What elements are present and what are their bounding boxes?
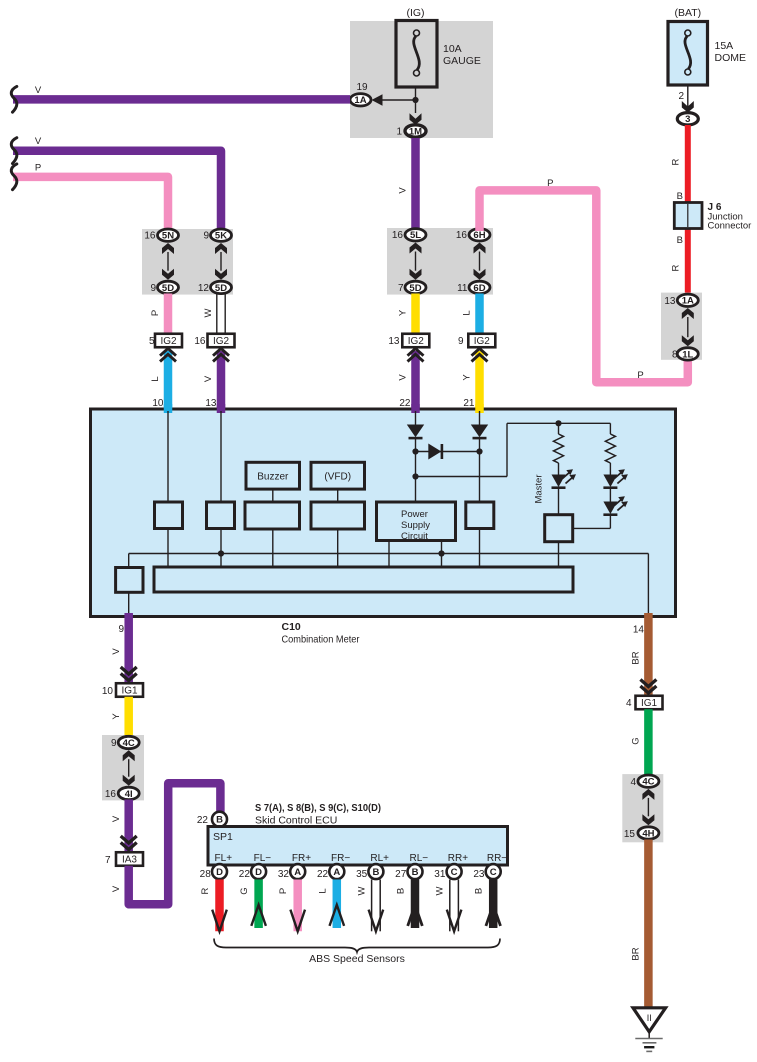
- svg-text:22: 22: [197, 815, 209, 826]
- svg-text:15A: 15A: [715, 40, 734, 52]
- svg-text:31: 31: [434, 869, 446, 880]
- svg-text:B: B: [677, 235, 683, 246]
- svg-text:16: 16: [456, 230, 468, 241]
- svg-text:L: L: [462, 310, 473, 315]
- svg-text:FR−: FR−: [331, 853, 350, 864]
- svg-text:1L: 1L: [682, 349, 693, 360]
- svg-text:16: 16: [105, 789, 117, 800]
- svg-text:II: II: [647, 1013, 652, 1023]
- svg-text:Supply: Supply: [401, 520, 430, 531]
- svg-text:13: 13: [664, 296, 676, 307]
- svg-text:D: D: [255, 867, 262, 878]
- svg-text:IG2: IG2: [213, 336, 230, 347]
- svg-text:P: P: [547, 178, 553, 189]
- svg-text:5N: 5N: [162, 231, 174, 242]
- svg-text:27: 27: [395, 869, 407, 880]
- svg-text:1: 1: [396, 127, 402, 138]
- svg-text:5D: 5D: [409, 283, 421, 294]
- svg-text:21: 21: [463, 398, 475, 409]
- svg-text:7: 7: [105, 855, 111, 866]
- svg-text:V: V: [398, 374, 409, 381]
- svg-text:4I: 4I: [125, 789, 133, 800]
- svg-text:L: L: [150, 376, 161, 381]
- svg-text:B: B: [677, 191, 683, 202]
- svg-text:G: G: [239, 887, 250, 894]
- svg-text:C: C: [451, 867, 458, 878]
- svg-text:IA3: IA3: [122, 855, 137, 866]
- svg-text:Combination Meter: Combination Meter: [282, 634, 360, 646]
- svg-text:B: B: [372, 867, 379, 878]
- svg-text:Y: Y: [462, 374, 473, 381]
- svg-text:R: R: [200, 887, 211, 894]
- svg-text:1A: 1A: [354, 95, 366, 106]
- svg-text:23: 23: [473, 869, 485, 880]
- svg-text:(BAT): (BAT): [674, 7, 701, 19]
- svg-text:B: B: [216, 815, 223, 826]
- svg-text:Circuit: Circuit: [401, 531, 428, 542]
- svg-text:22: 22: [317, 869, 329, 880]
- svg-text:5K: 5K: [215, 231, 227, 242]
- svg-text:V: V: [35, 136, 42, 147]
- svg-text:12: 12: [198, 283, 210, 294]
- svg-text:R: R: [671, 158, 682, 165]
- svg-text:V: V: [35, 85, 42, 96]
- svg-text:10: 10: [102, 686, 114, 697]
- svg-text:A: A: [333, 867, 340, 878]
- svg-text:IG2: IG2: [160, 336, 177, 347]
- svg-text:Buzzer: Buzzer: [257, 472, 289, 483]
- svg-text:P: P: [637, 370, 643, 381]
- svg-text:16: 16: [194, 336, 206, 347]
- svg-text:35: 35: [356, 869, 368, 880]
- svg-text:9: 9: [118, 624, 124, 635]
- svg-text:16: 16: [144, 231, 156, 242]
- svg-text:Skid Control ECU: Skid Control ECU: [255, 815, 337, 827]
- svg-text:11: 11: [457, 283, 468, 294]
- svg-text:A: A: [294, 867, 301, 878]
- svg-text:22: 22: [399, 398, 411, 409]
- svg-text:9: 9: [150, 283, 156, 294]
- svg-text:9: 9: [458, 336, 464, 347]
- svg-text:1A: 1A: [682, 296, 694, 307]
- svg-text:Y: Y: [398, 309, 409, 316]
- svg-text:ABS Speed Sensors: ABS Speed Sensors: [309, 953, 405, 965]
- svg-text:B: B: [412, 867, 419, 878]
- svg-text:5D: 5D: [215, 283, 227, 294]
- svg-text:GAUGE: GAUGE: [443, 55, 481, 67]
- svg-text:IG1: IG1: [641, 698, 658, 709]
- svg-text:2: 2: [678, 91, 684, 102]
- svg-text:(IG): (IG): [406, 7, 424, 19]
- svg-text:D: D: [216, 867, 223, 878]
- svg-text:RR−: RR−: [487, 853, 507, 864]
- svg-text:IG2: IG2: [408, 336, 425, 347]
- svg-text:C10: C10: [282, 621, 301, 633]
- svg-text:DOME: DOME: [715, 52, 747, 64]
- svg-text:V: V: [111, 815, 122, 822]
- svg-text:5L: 5L: [410, 230, 421, 241]
- svg-text:7: 7: [398, 283, 404, 294]
- svg-text:15: 15: [624, 829, 636, 840]
- svg-text:RL−: RL−: [409, 853, 428, 864]
- svg-text:FL+: FL+: [215, 853, 233, 864]
- svg-text:6H: 6H: [473, 230, 485, 241]
- svg-text:1M: 1M: [409, 126, 422, 137]
- svg-text:V: V: [398, 187, 409, 194]
- svg-text:10A: 10A: [443, 43, 462, 55]
- svg-text:32: 32: [278, 869, 290, 880]
- svg-text:28: 28: [200, 869, 212, 880]
- svg-text:V: V: [111, 648, 122, 655]
- svg-text:6D: 6D: [473, 283, 485, 294]
- svg-text:V: V: [111, 885, 122, 892]
- svg-text:B: B: [474, 888, 485, 894]
- svg-text:3: 3: [685, 114, 690, 125]
- svg-text:Connector: Connector: [708, 221, 752, 232]
- svg-text:Y: Y: [111, 713, 122, 720]
- svg-text:22: 22: [239, 869, 251, 880]
- svg-text:RR+: RR+: [448, 853, 468, 864]
- svg-text:13: 13: [205, 398, 217, 409]
- svg-text:V: V: [203, 375, 214, 382]
- svg-text:S 7(A), S 8(B), S 9(C), S10(D): S 7(A), S 8(B), S 9(C), S10(D): [255, 802, 381, 814]
- svg-text:W: W: [435, 886, 446, 895]
- svg-text:4: 4: [630, 777, 636, 788]
- svg-text:5D: 5D: [162, 283, 174, 294]
- svg-text:FL−: FL−: [254, 853, 272, 864]
- svg-text:IG2: IG2: [474, 336, 491, 347]
- svg-text:C: C: [490, 867, 497, 878]
- svg-text:4C: 4C: [642, 777, 654, 788]
- svg-text:L: L: [317, 888, 328, 893]
- svg-text:P: P: [35, 163, 41, 174]
- svg-text:P: P: [278, 888, 289, 894]
- svg-text:IG1: IG1: [121, 686, 138, 697]
- svg-text:RL+: RL+: [370, 853, 389, 864]
- svg-text:9: 9: [111, 738, 117, 749]
- svg-text:14: 14: [633, 625, 645, 636]
- svg-text:FR+: FR+: [292, 853, 311, 864]
- svg-text:4C: 4C: [123, 738, 135, 749]
- svg-text:(VFD): (VFD): [324, 472, 351, 483]
- svg-text:16: 16: [392, 230, 404, 241]
- svg-text:4: 4: [626, 698, 632, 709]
- svg-text:Master: Master: [534, 474, 545, 503]
- svg-text:9: 9: [203, 231, 209, 242]
- svg-text:BR: BR: [631, 947, 642, 960]
- svg-text:G: G: [631, 737, 642, 744]
- svg-text:P: P: [150, 310, 161, 316]
- svg-text:BR: BR: [631, 651, 642, 664]
- svg-text:4H: 4H: [642, 828, 654, 839]
- svg-text:B: B: [396, 888, 407, 894]
- svg-text:W: W: [203, 308, 214, 317]
- svg-text:10: 10: [152, 398, 164, 409]
- svg-text:Power: Power: [401, 509, 428, 520]
- svg-text:SP1: SP1: [213, 831, 233, 843]
- svg-text:W: W: [356, 886, 367, 895]
- svg-text:13: 13: [388, 336, 400, 347]
- svg-text:R: R: [671, 264, 682, 271]
- svg-text:19: 19: [356, 82, 368, 93]
